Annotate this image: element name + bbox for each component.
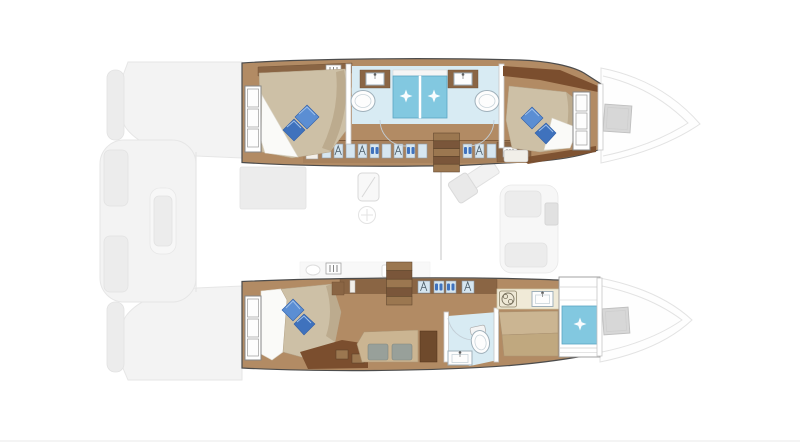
port-corridor — [303, 140, 531, 163]
sink-icon — [448, 351, 472, 365]
owner-lounge — [357, 330, 437, 362]
owner-bathroom — [444, 308, 499, 366]
aft-cockpit — [100, 140, 196, 302]
desk — [420, 331, 437, 362]
bed-cabinet — [332, 282, 344, 295]
floorplan-image: Catamaran yacht interior floor plan, top… — [0, 0, 800, 442]
saloon-table — [240, 167, 306, 209]
port-bow-faded — [601, 68, 700, 163]
vanity — [448, 70, 478, 88]
chaise-seat — [502, 333, 558, 356]
sink-icon — [532, 292, 553, 307]
owner-wardrobes — [340, 280, 497, 294]
chaise-seat — [499, 311, 558, 335]
swim-step — [107, 302, 124, 372]
vanity — [360, 70, 390, 88]
hull-windows — [245, 86, 261, 152]
bow-bulkhead — [597, 278, 602, 356]
swim-step — [107, 70, 124, 140]
bow-bulkhead — [598, 84, 603, 150]
companionway-steps — [434, 133, 460, 172]
forward-shower-room — [559, 277, 602, 357]
cabin-seat — [504, 150, 528, 162]
hull-windows — [245, 296, 261, 360]
sink-faint — [306, 265, 320, 275]
seat-step — [336, 350, 348, 359]
stove-icon — [500, 291, 517, 307]
catamaran-floor-plan: Catamaran yacht interior floor plan, top… — [0, 0, 800, 442]
foredeck-bench — [500, 185, 558, 273]
companionway-steps — [387, 262, 413, 305]
seat-cushion — [368, 344, 388, 360]
washbasin-icon — [475, 91, 499, 112]
washbasin-icon — [351, 91, 375, 112]
starboard-owner-hull — [242, 262, 602, 371]
port-aft-cabin — [245, 63, 352, 158]
hull-windows — [573, 92, 590, 150]
bow-hatch — [603, 104, 632, 133]
starboard-bow-faded — [600, 278, 692, 362]
owner-vanity-counter — [497, 289, 559, 356]
vent-grille-icon — [326, 263, 341, 274]
bow-hatch — [602, 307, 630, 335]
cockpit-bench — [104, 150, 128, 206]
seat-cushion — [392, 344, 412, 360]
saloon-faded — [240, 159, 558, 277]
cockpit-bench — [104, 236, 128, 292]
port-hull — [242, 59, 603, 172]
